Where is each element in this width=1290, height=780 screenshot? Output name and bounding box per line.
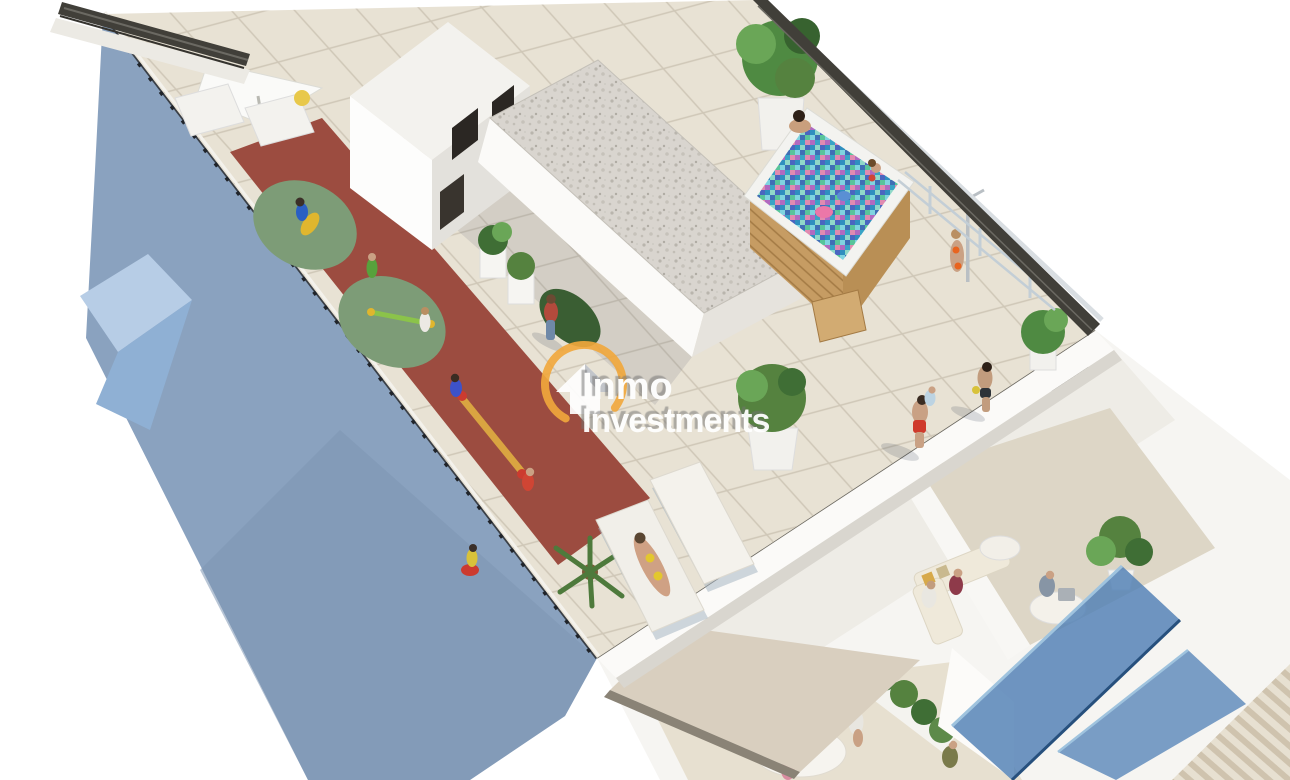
pool-float [837, 191, 851, 201]
bbq-grill [1058, 588, 1075, 601]
child-standing [420, 307, 431, 332]
pool-float [815, 206, 833, 218]
coffee-table [980, 536, 1020, 560]
rooftop-render [0, 0, 1290, 780]
side-table-round [294, 90, 310, 106]
child-walking [367, 253, 378, 278]
wall-planter [507, 252, 535, 304]
render-canvas: Inmo Investments [0, 0, 1290, 780]
